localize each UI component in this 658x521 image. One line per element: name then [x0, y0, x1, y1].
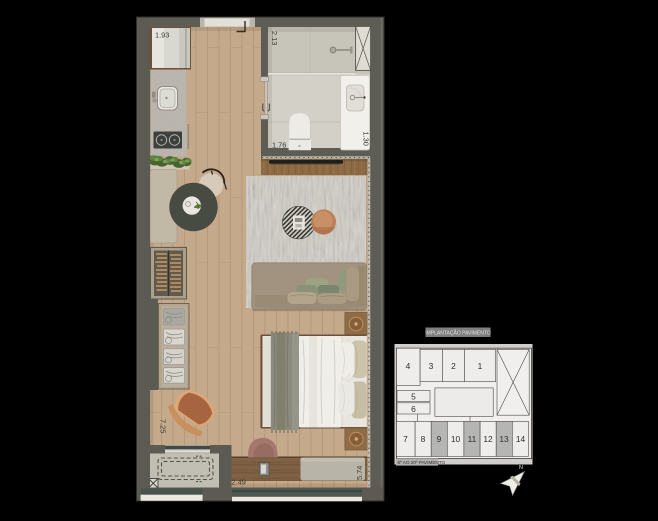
svg-text:5: 5 [411, 392, 416, 402]
svg-text:10: 10 [451, 434, 461, 444]
svg-text:4: 4 [406, 361, 411, 371]
svg-text:6: 6 [411, 404, 416, 414]
svg-text:5.74: 5.74 [355, 466, 364, 480]
svg-text:11: 11 [468, 434, 477, 444]
svg-text:6º AO 20º PAVIMENTO: 6º AO 20º PAVIMENTO [398, 460, 446, 465]
svg-text:2: 2 [451, 361, 456, 371]
svg-text:12: 12 [483, 434, 493, 444]
svg-text:1.76: 1.76 [272, 141, 286, 150]
svg-text:13: 13 [499, 434, 509, 444]
svg-text:7: 7 [403, 434, 408, 444]
svg-text:N: N [519, 465, 523, 471]
svg-text:IMPLANTAÇÃO PAVIMENTO: IMPLANTAÇÃO PAVIMENTO [425, 330, 491, 337]
svg-text:1.30: 1.30 [362, 132, 371, 146]
svg-text:7.25: 7.25 [159, 419, 168, 433]
svg-text:1.93: 1.93 [155, 31, 169, 40]
svg-text:2.49: 2.49 [232, 478, 246, 487]
svg-text:9: 9 [437, 434, 442, 444]
svg-text:2.13: 2.13 [270, 31, 279, 45]
svg-text:3: 3 [429, 361, 434, 371]
svg-text:8: 8 [421, 434, 426, 444]
svg-text:14: 14 [516, 434, 526, 444]
svg-text:1: 1 [478, 361, 483, 371]
